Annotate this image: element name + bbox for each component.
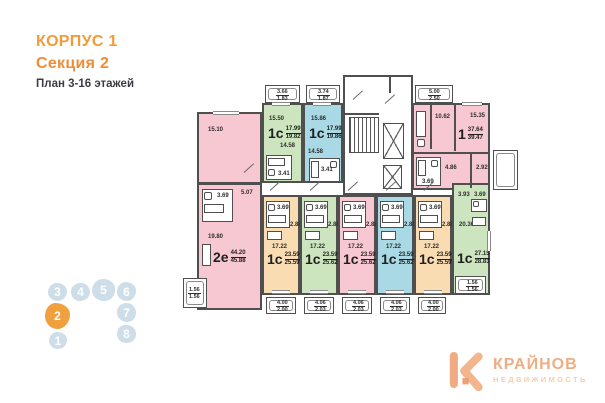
area-living: 17.99: [286, 126, 301, 134]
apartment-type: 1с: [457, 251, 473, 265]
balcony-area-label: 1.56 1.56: [188, 287, 201, 301]
section-number: 4: [77, 285, 84, 299]
balcony-area-label: 5.00 2.50: [428, 89, 441, 103]
interior-wall: [454, 105, 456, 151]
bath-area-label: 3.69: [277, 205, 289, 211]
kitchen-counter-icon: [305, 231, 320, 240]
section-piece-4[interactable]: 4: [71, 283, 90, 301]
balcony-area-label: 1.56 1.56: [466, 280, 479, 294]
balcony-row-1: 4.00 2.00: [266, 297, 296, 314]
section-piece-3[interactable]: 3: [48, 283, 67, 301]
hall-area-label: 14.58: [308, 149, 323, 155]
apartment-type-label: 1с 23.59 25.62: [343, 252, 376, 267]
apartment-type: 1: [458, 127, 466, 141]
balcony-area-label: 4.06 2.03: [390, 300, 403, 314]
apartment-type: 1с: [381, 252, 397, 266]
logo-title: КРАЙНОВ: [493, 357, 588, 373]
kitchen-counter-icon: [343, 231, 358, 240]
room-area-label: 17.22: [310, 244, 325, 250]
balcony-area-half: 2.00: [276, 307, 289, 313]
sink-icon: [306, 204, 313, 211]
balcony-row-3: 4.06 2.03: [342, 297, 372, 314]
area-total: 25.62: [361, 260, 376, 267]
apartment-type: 1с: [419, 252, 435, 266]
elevator-icon: [383, 123, 404, 159]
bathtub-icon: [268, 215, 286, 223]
toilet-icon: [268, 169, 275, 176]
window-icon: [272, 290, 290, 294]
balcony-row-4: 4.06 2.03: [380, 297, 410, 314]
apartment-type-label: 1 37.64 39.47: [458, 127, 483, 142]
section-number: 7: [123, 306, 130, 320]
interior-wall: [199, 182, 260, 185]
apartment-1c-row-3: 3.69 2.88 17.22 1с 23.59 25.62: [338, 195, 376, 295]
room-area-label: 17.22: [424, 244, 439, 250]
apartment-areas: 27.15 28.83: [475, 251, 490, 266]
room-area-label: 15.50: [269, 116, 284, 122]
sink-icon: [344, 204, 351, 211]
logo-k-house-icon: [448, 349, 484, 391]
balcony-area-half: 2.03: [390, 307, 403, 313]
area-total: 39.47: [468, 135, 483, 142]
bathtub-icon: [344, 215, 362, 223]
apartment-areas: 37.64 39.47: [468, 127, 483, 142]
balcony-area-label: 4.06 2.03: [352, 300, 365, 314]
sink-icon: [431, 160, 438, 167]
section-piece-2-active[interactable]: 2: [45, 303, 70, 329]
apartment-1: 10.62 15.35 1 37.64 39.47 3.69 4.86 2.92: [412, 103, 490, 190]
window-icon: [348, 290, 366, 294]
area-total: 19.86: [327, 134, 342, 141]
hall-area-label: 14.58: [280, 143, 295, 149]
area-total: 28.83: [475, 259, 490, 266]
balcony-area-full: 3.74: [317, 89, 330, 96]
agency-logo: КРАЙНОВ НЕДВИЖИМОСТЬ: [448, 349, 588, 391]
balcony-area-full: 4.06: [314, 300, 327, 307]
kitchen-counter-icon: [267, 231, 282, 240]
balcony-area-full: 5.00: [428, 89, 441, 96]
balcony-area-label: 4.00 2.00: [427, 300, 440, 314]
interior-wall: [345, 113, 379, 115]
apartment-type-label: 2е 44.20 45.88: [213, 250, 246, 265]
bath-area-label: 3.69: [353, 205, 365, 211]
apartment-areas: 44.20 45.88: [231, 250, 246, 265]
apartment-type-label: 1с 17.99 19.82: [268, 126, 301, 141]
door-swing: [385, 94, 395, 103]
balcony-area-half: 2.00: [427, 307, 440, 313]
stair-elevator-core: [343, 75, 413, 195]
room-area-label: 15.35: [470, 113, 485, 119]
door-swing: [353, 90, 363, 99]
kitchen-counter-icon: [419, 231, 434, 240]
elevator-icon: [383, 165, 402, 189]
section-number: 5: [100, 283, 107, 297]
area-living: 44.20: [231, 250, 246, 258]
balcony-area-half: 2.03: [352, 307, 365, 313]
area-living: 23.59: [361, 252, 376, 260]
apartment-areas: 23.59 25.59: [437, 252, 452, 267]
room-area-label: 17.22: [272, 244, 287, 250]
bath-area-label: 3.69: [217, 193, 229, 199]
window-icon: [213, 111, 239, 115]
interior-wall: [389, 77, 391, 93]
room-area-label: 17.22: [348, 244, 363, 250]
apartment-type: 1с: [305, 252, 321, 266]
apartment-type-label: 1с 23.59 25.62: [305, 252, 338, 267]
section-number: 8: [123, 327, 130, 341]
section-number: 2: [54, 309, 61, 323]
room-area-label: 15.10: [208, 127, 223, 133]
bath-area-label: 3.41: [278, 171, 290, 177]
balcony-area-full: 4.00: [276, 300, 289, 307]
apartment-type: 2е: [213, 250, 229, 264]
balcony-area-label: 4.00 2.00: [276, 300, 289, 314]
hall-area-label: 5.07: [241, 190, 253, 196]
sink-icon: [473, 201, 479, 207]
apartment-type: 1с: [309, 126, 325, 140]
area-living: 27.15: [475, 251, 490, 259]
balcony-area-half: 1.56: [466, 287, 479, 293]
area-total: 45.88: [231, 258, 246, 265]
area-total: 25.62: [399, 260, 414, 267]
apartment-type: 1с: [268, 126, 284, 140]
interior-wall: [470, 154, 472, 188]
section-number: 3: [54, 285, 61, 299]
interior-wall: [430, 105, 432, 149]
kitchen-counter-icon: [416, 111, 426, 137]
sink-icon: [382, 204, 389, 211]
bath-area-label: 3.69: [429, 205, 441, 211]
sink-icon: [268, 204, 275, 211]
apartment-1c-green-top: 15.50 1с 17.99 19.82 14.58 3.41: [262, 103, 303, 183]
section-piece-8[interactable]: 8: [117, 325, 136, 343]
area-total: 25.59: [437, 260, 452, 267]
wardrobe-icon: [202, 244, 211, 266]
apartment-areas: 17.99 19.82: [286, 126, 301, 141]
area-living: 23.59: [323, 252, 338, 260]
window-icon: [386, 290, 404, 294]
kitchen-counter-icon: [381, 231, 396, 240]
section-number: 6: [123, 285, 130, 299]
balcony-area-full: 4.00: [427, 300, 440, 307]
apartment-areas: 17.99 19.86: [327, 126, 342, 141]
apartment-areas: 23.59 25.62: [361, 252, 376, 267]
apartment-type-label: 1с 27.15 28.83: [457, 251, 490, 266]
balcony-green-right: 1.56 1.56: [455, 276, 486, 294]
balcony-area-full: 4.06: [352, 300, 365, 307]
balcony-area-label: 3.74 1.87: [317, 89, 330, 103]
balcony-area-full: 4.06: [390, 300, 403, 307]
bathtub-icon: [268, 158, 285, 166]
floor-plan: 15.10 3.69 5.07 19.80 2е 44.20 45.88 1.5…: [148, 72, 522, 320]
balcony-row-2: 4.06 2.03: [304, 297, 334, 314]
area-total: 25.62: [323, 260, 338, 267]
hall-area-label: 3.69: [474, 192, 486, 198]
apartment-areas: 23.59 25.62: [399, 252, 414, 267]
kitchen-area-label: 10.62: [435, 114, 450, 120]
balcony-area-label: 3.66 1.83: [276, 89, 289, 103]
window-icon: [462, 102, 482, 106]
room-area-label: 19.80: [208, 234, 223, 240]
apartment-type-label: 1с 23.59 25.62: [381, 252, 414, 267]
bathtub-icon: [306, 215, 324, 223]
plan-header: КОРПУС 1 Секция 2 План 3-16 этажей: [36, 33, 134, 90]
window-icon: [310, 290, 328, 294]
interior-wall: [414, 152, 488, 154]
section-title: Секция 2: [36, 55, 134, 73]
balcony-area-full: 1.56: [466, 280, 479, 287]
balcony-area-half: 1.56: [188, 294, 201, 300]
balcony-area-half: 1.83: [276, 96, 289, 102]
bathtub-icon: [311, 161, 319, 178]
balcony-2e: 1.56 1.56: [183, 278, 207, 308]
balcony-green: 3.66 1.83: [265, 85, 300, 103]
wardrobe-area-label: 2.92: [476, 165, 488, 171]
bath-area-label: 3.41: [321, 167, 333, 173]
apartment-type: 1с: [343, 252, 359, 266]
logo-text: КРАЙНОВ НЕДВИЖИМОСТЬ: [493, 357, 588, 384]
bathtub-icon: [382, 215, 400, 223]
apartment-1c-row-1: 3.69 2.88 17.22 1с 23.59 25.59: [262, 195, 300, 295]
apartment-type-label: 1с 23.59 25.59: [267, 252, 300, 267]
balcony-area-half: 2.50: [428, 96, 441, 102]
balcony-area-full: 1.56: [188, 287, 201, 294]
area-living: 23.59: [285, 252, 300, 260]
area-living: 23.59: [399, 252, 414, 260]
area-living: 37.64: [468, 127, 483, 135]
balcony-railing: [496, 153, 515, 187]
apartment-1c-row-5: 3.69 2.88 17.22 1с 23.59 25.59: [414, 195, 452, 295]
apartment-1c-row-2: 3.69 2.88 17.22 1с 23.59 25.62: [300, 195, 338, 295]
apartment-areas: 23.59 25.59: [285, 252, 300, 267]
bath-area-label: 3.69: [315, 205, 327, 211]
area-total: 19.82: [286, 134, 301, 141]
sink-icon: [420, 204, 427, 211]
balcony-area-half: 2.03: [314, 307, 327, 313]
stairs-icon: [349, 117, 379, 153]
side-balcony-apt1: [493, 150, 518, 190]
balcony-area-label: 4.06 2.03: [314, 300, 327, 314]
bath-area-label: 3.93: [458, 192, 470, 198]
hall-area-label: 4.86: [445, 165, 457, 171]
balcony-apt1: 5.00 2.50: [415, 85, 453, 103]
apartment-type: 1с: [267, 252, 283, 266]
section-piece-1[interactable]: 1: [49, 332, 67, 349]
room-area-label: 15.86: [311, 116, 326, 122]
apartment-type-label: 1с 23.59 25.59: [419, 252, 452, 267]
apartment-1c-row-4: 3.69 2.88 17.22 1с 23.59 25.62: [376, 195, 414, 295]
section-piece-6[interactable]: 6: [117, 282, 136, 301]
bathtub-icon: [204, 204, 224, 213]
room-area-label: 17.22: [386, 244, 401, 250]
sink-icon: [204, 192, 212, 200]
area-living: 17.99: [327, 126, 342, 134]
balcony-blue: 3.74 1.87: [306, 85, 340, 103]
balcony-area-half: 1.87: [317, 96, 330, 102]
area-total: 25.59: [285, 260, 300, 267]
bathtub-icon: [418, 160, 426, 176]
section-piece-7[interactable]: 7: [117, 303, 136, 322]
section-number: 1: [55, 334, 62, 348]
section-piece-5[interactable]: 5: [92, 279, 115, 301]
building-title: КОРПУС 1: [36, 33, 134, 51]
apartment-type-label: 1с 17.99 19.86: [309, 126, 342, 141]
apartment-1c-blue-top: 15.86 1с 17.99 19.86 14.58 3.41: [303, 103, 343, 183]
balcony-area-full: 3.66: [276, 89, 289, 96]
window-icon: [424, 290, 442, 294]
logo-subtitle: НЕДВИЖИМОСТЬ: [493, 376, 588, 384]
bathtub-icon: [420, 215, 438, 223]
window-icon: [487, 231, 491, 251]
apartment-areas: 23.59 25.62: [323, 252, 338, 267]
balcony-row-5: 4.00 2.00: [418, 297, 446, 314]
floors-subtitle: План 3-16 этажей: [36, 78, 134, 90]
stove-icon: [417, 139, 425, 147]
bath-area-label: 3.69: [391, 205, 403, 211]
area-living: 23.59: [437, 252, 452, 260]
kitchen-counter-icon: [472, 217, 486, 226]
